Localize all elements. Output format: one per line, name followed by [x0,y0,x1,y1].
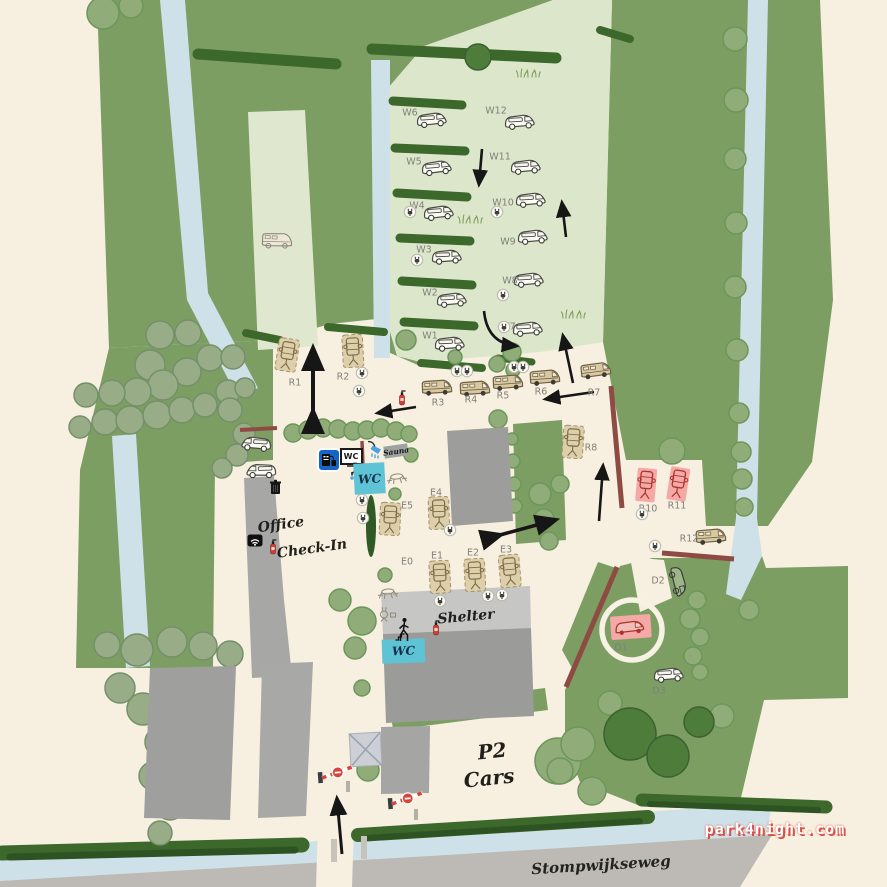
tree [396,330,416,350]
tree [217,641,243,667]
pitch-label-D1: D1 [614,643,627,654]
tree [647,735,689,777]
pitch-label-R4: R4 [465,395,478,406]
pitch-W6 [415,108,450,134]
pitch-W7 [511,317,545,343]
pitch-W11 [509,155,543,181]
electric-hookup-icon [356,492,369,511]
electric-hookup-icon [491,204,504,223]
tree [148,370,178,400]
grass-tuft [457,210,483,229]
pitch-label-W6: W6 [402,108,417,119]
pitch-label-R1: R1 [289,378,302,389]
picnic-table-icon [385,468,409,490]
person-stairs-icon [395,617,412,647]
pitch-label-E5: E5 [401,501,413,512]
grass-tuft [703,591,729,610]
tree [94,632,120,658]
tree [561,727,595,761]
pitch-label-R5: R5 [497,391,510,402]
tree [99,380,125,406]
electric-hookup-icon [444,522,457,541]
tree [723,27,747,51]
central-building [447,427,513,526]
pitch-label-D2: D2 [651,576,664,587]
tree [529,483,551,505]
grass-tuft [515,64,541,83]
tree [175,320,201,346]
watermark: park4night.com [705,820,845,838]
tree [691,628,709,646]
tree [148,821,172,845]
tree [739,600,759,620]
tree [344,637,366,659]
tree [235,378,255,398]
tree [116,406,144,434]
tree [680,609,700,629]
tree [218,398,242,422]
electric-hookup-icon [461,363,474,382]
electric-hookup-icon [636,506,649,525]
pitch-E5 [377,501,402,541]
pitch-label-W12: W12 [485,106,506,117]
pitch-label-E2: E2 [467,548,479,559]
annex-building [381,726,430,794]
tree [724,88,748,112]
tree [401,426,417,442]
tree [489,356,505,372]
wc-building: WC [353,462,386,495]
tree [489,410,507,428]
bridge-post [361,836,367,859]
pitch-W9 [516,225,550,251]
pitch-label-W8: W8 [502,276,517,287]
shower-icon [365,440,383,465]
tree [735,498,753,516]
pitch-label-R12: R12 [680,534,699,545]
tree [143,401,171,429]
tree [123,378,151,406]
tree [212,458,232,478]
electric-hookup-icon [357,510,370,529]
tree [146,321,174,349]
pitch-R10 [634,467,658,508]
pitch-W1 [433,332,467,357]
pitch-label-R2: R2 [337,372,350,383]
grill-icon [377,606,397,626]
electric-hookup-icon [353,383,366,402]
electric-hookup-icon [496,587,509,606]
tree [547,758,573,784]
grass-tuft [560,305,586,324]
tree [540,532,558,550]
pitch-label-R11: R11 [668,501,687,512]
campervan-icon [244,459,278,484]
pitch-label-E1: E1 [431,551,443,562]
tree [684,647,702,665]
tree [193,393,217,417]
tree [157,627,187,657]
electric-hookup-icon [649,538,662,557]
pitch-label-R8: R8 [585,443,598,454]
tree [92,409,118,435]
electric-hookup-icon [356,365,369,384]
motorhome-icon [261,229,294,255]
pitch-W4 [422,201,457,227]
campsite-map: W1W2W3W4W5W6W7W8W9W10W11W12R1R2R3R4R5R6R… [0,0,887,887]
tree [121,634,153,666]
electric-hookup-icon [497,287,510,306]
tree [465,44,491,70]
tree [389,488,401,500]
campervan-icon [239,432,273,458]
tree [732,469,752,489]
pitch-label-E0: E0 [401,557,413,568]
pitch-W2 [435,288,469,314]
tree [221,345,245,369]
pitch-label-R6: R6 [535,387,548,398]
pitch-label-E3: E3 [500,545,512,556]
pitch-W3 [430,245,464,270]
pitch-R12 [694,525,727,552]
tree [729,403,749,423]
tree [197,345,223,371]
pitch-label-W2: W2 [422,288,437,299]
entry-barrier [315,760,357,793]
entry-barrier [385,786,427,819]
bridge-post [331,839,337,862]
pitch-R7 [579,358,613,386]
barn-building [258,662,313,818]
pitch-label-W11: W11 [489,152,510,163]
tree [329,589,351,611]
electric-hookup-icon [404,204,417,223]
tree [692,664,708,680]
pitch-W12 [503,110,537,136]
pitch-W10 [514,188,548,214]
pitch-label-W5: W5 [406,157,421,168]
pitch-R8 [560,424,586,465]
tree [354,680,370,696]
tree [731,442,751,462]
tree [659,438,685,464]
tree [724,148,746,170]
pitch-label-W1: W1 [422,331,437,342]
pitch-label-D3: D3 [652,686,665,697]
electric-hookup-icon [498,319,511,338]
pitch-D1 [609,613,653,645]
tree [578,777,606,805]
tree [69,416,91,438]
tree [87,0,119,29]
tree [378,568,392,582]
label-p2: P2 [476,738,507,765]
tree [119,0,143,18]
electric-hookup-icon [517,359,530,378]
tree [169,397,195,423]
pitch-label-W9: W9 [500,237,515,248]
pitch-label-R7: R7 [588,388,601,399]
tree [74,383,98,407]
tree [189,632,217,660]
barn-building [144,666,236,820]
pitch-label-E4: E4 [430,488,442,499]
service-station-sign [317,448,341,476]
terrain-base [0,0,887,887]
pitch-W5 [420,156,455,183]
tree [724,276,746,298]
pitch-label-R3: R3 [432,398,445,409]
tree [726,339,748,361]
tree [725,212,747,234]
picnic-table-icon [376,584,400,605]
electric-hookup-icon [434,593,447,612]
electric-hookup-icon [411,252,424,271]
fire-extinguisher-icon [397,389,407,411]
tree [348,607,376,635]
electric-hookup-icon [482,588,495,607]
tree [551,475,569,493]
tree [684,707,714,737]
